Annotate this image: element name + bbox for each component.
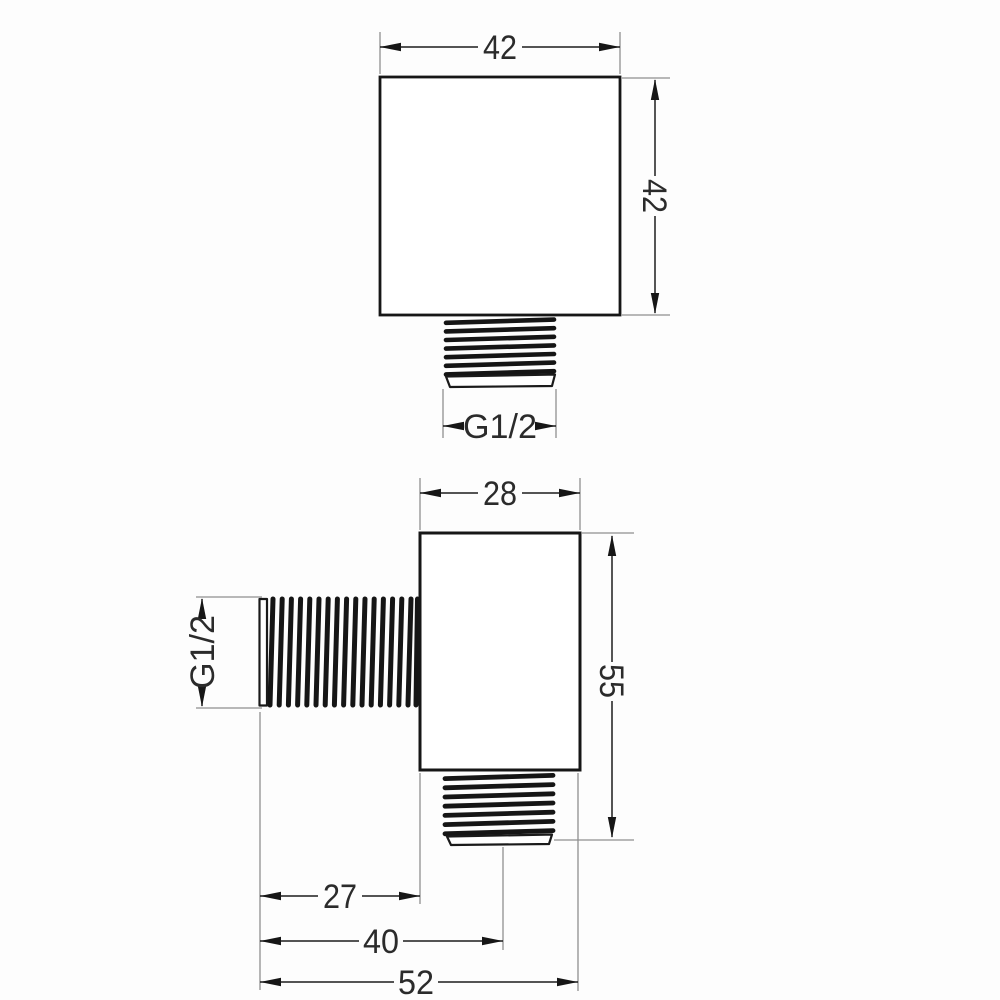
side-dim-thread-length: 27 bbox=[260, 773, 420, 916]
front-dim-height: 42 bbox=[622, 78, 673, 315]
side-dim-thread-length-label: 27 bbox=[323, 878, 357, 916]
front-view: 42 42 G1/2 bbox=[380, 29, 673, 446]
front-dim-width-label: 42 bbox=[483, 29, 517, 67]
front-dim-width: 42 bbox=[380, 29, 620, 74]
side-dim-outlet-offset-label: 40 bbox=[363, 923, 399, 961]
side-dim-total-depth-label: 52 bbox=[398, 964, 434, 1000]
side-dim-total-depth: 52 bbox=[260, 773, 578, 1000]
side-dim-outlet-offset: 40 bbox=[260, 847, 503, 961]
side-view: 28 55 G1/2 bbox=[184, 475, 634, 1000]
front-dim-thread: G1/2 bbox=[443, 389, 556, 446]
side-outlet-thread-end-cap bbox=[447, 835, 552, 846]
side-body-outline bbox=[420, 533, 580, 770]
side-dim-thread: G1/2 bbox=[184, 597, 262, 708]
front-dim-thread-label: G1/2 bbox=[463, 408, 537, 446]
technical-drawing: 42 42 G1/2 bbox=[0, 0, 1000, 1000]
side-wall-thread bbox=[260, 599, 418, 706]
side-dim-body-width-label: 28 bbox=[483, 475, 517, 513]
front-body-outline bbox=[380, 77, 620, 315]
front-dim-height-label: 42 bbox=[635, 179, 673, 213]
side-dim-body-width: 28 bbox=[420, 475, 580, 530]
side-outlet-thread bbox=[445, 775, 553, 845]
front-thread-end-cap bbox=[446, 375, 555, 388]
front-outlet-thread bbox=[446, 320, 555, 387]
side-dim-height-label: 55 bbox=[592, 664, 630, 698]
drawing-canvas: 42 42 G1/2 bbox=[0, 0, 1000, 1000]
side-dim-thread-label: G1/2 bbox=[184, 615, 222, 689]
side-wall-thread-end-cap bbox=[260, 599, 268, 706]
